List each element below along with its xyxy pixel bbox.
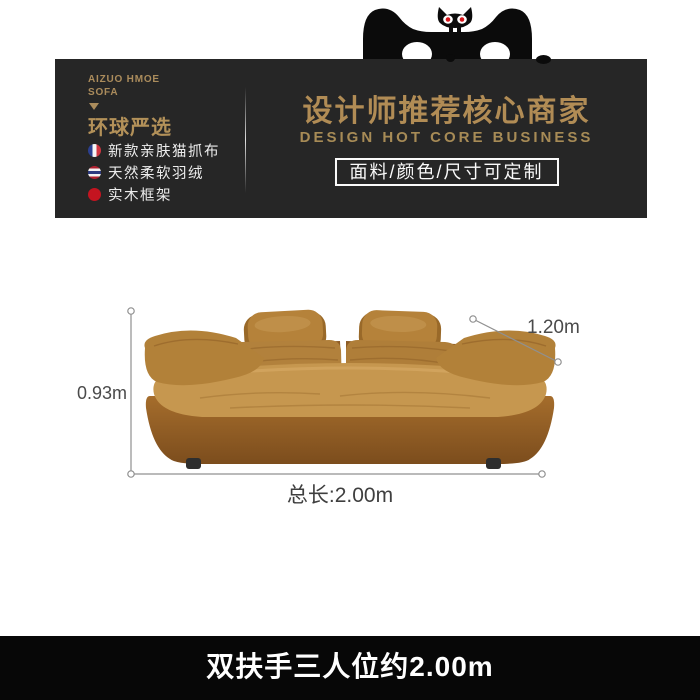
- customize-badge: 面料/颜色/尺寸可定制: [334, 158, 558, 186]
- tmall-cat-paw-icon: [536, 55, 551, 64]
- height-dimension-label: 0.93m: [77, 383, 127, 404]
- footer-caption: 双扶手三人位约2.00m: [0, 636, 700, 698]
- length-dimension-label: 总长:2.00m: [240, 479, 440, 509]
- feature-item: 新款亲肤猫抓布: [88, 139, 220, 161]
- product-card: AIZUO HMOE SOFA 环球严选 新款亲肤猫抓布 天然柔软羽绒 实木框架: [0, 0, 700, 700]
- feature-item: 天然柔软羽绒: [88, 161, 220, 183]
- france-flag-icon: [88, 144, 101, 157]
- headline-block: 设计师推荐核心商家 DESIGN HOT CORE BUSINESS 面料/颜色…: [246, 59, 647, 218]
- feature-label: 新款亲肤猫抓布: [108, 140, 220, 161]
- feature-item: 实木框架: [88, 183, 220, 205]
- footer-bar: 双扶手三人位约2.00m: [0, 636, 700, 700]
- sofa-product-image: [140, 298, 560, 473]
- red-dot-icon: [88, 188, 101, 201]
- headline-title: 设计师推荐核心商家: [246, 86, 647, 130]
- promo-banner: AIZUO HMOE SOFA 环球严选 新款亲肤猫抓布 天然柔软羽绒 实木框架: [55, 59, 647, 218]
- thailand-flag-icon: [88, 166, 101, 179]
- brand-slogan: 环球严选: [88, 111, 172, 140]
- tmall-cat-nose-icon: [446, 54, 455, 62]
- feature-label: 天然柔软羽绒: [108, 162, 204, 183]
- brand-name-line2: SOFA: [88, 87, 118, 98]
- brand-name-line1: AIZUO HMOE: [88, 74, 160, 85]
- triangle-down-icon: [89, 103, 99, 110]
- tmall-mini-cat-icon: [436, 6, 474, 34]
- headline-subtitle: DESIGN HOT CORE BUSINESS: [246, 129, 647, 146]
- brand-block: AIZUO HMOE SOFA 环球严选 新款亲肤猫抓布 天然柔软羽绒 实木框架: [88, 59, 238, 218]
- feature-label: 实木框架: [108, 184, 172, 205]
- feature-list: 新款亲肤猫抓布 天然柔软羽绒 实木框架: [88, 139, 220, 205]
- depth-dimension-label: 1.20m: [527, 317, 580, 339]
